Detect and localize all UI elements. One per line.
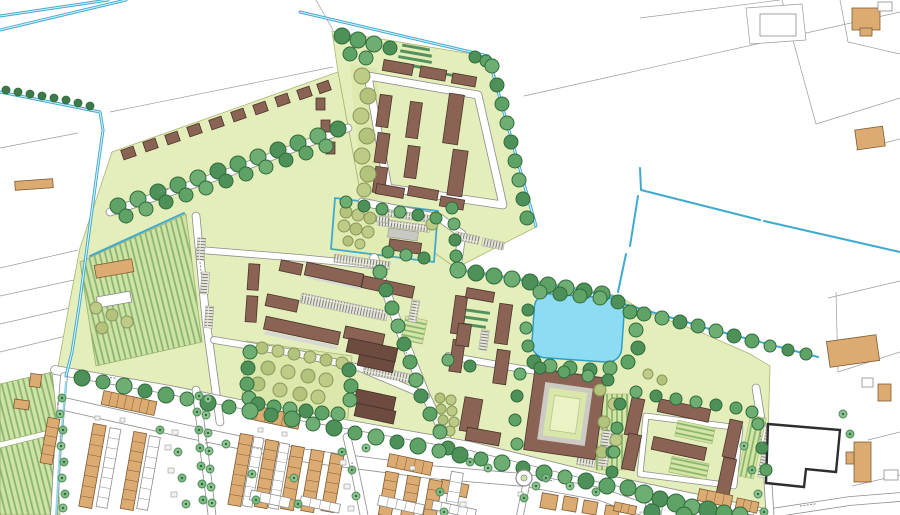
masterplan-map <box>0 0 900 515</box>
masterplan-canvas <box>0 0 900 515</box>
special-building <box>766 424 840 487</box>
trees-canal <box>2 86 94 110</box>
roundabout-inner <box>521 475 527 481</box>
